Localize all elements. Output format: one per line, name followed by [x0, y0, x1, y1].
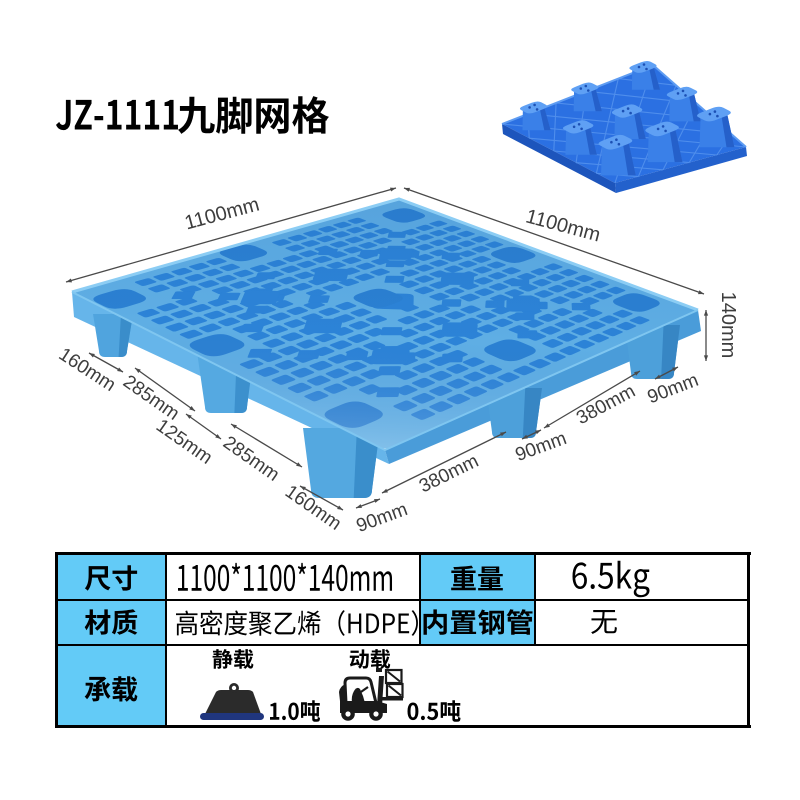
svg-text:140mm: 140mm [717, 292, 739, 359]
